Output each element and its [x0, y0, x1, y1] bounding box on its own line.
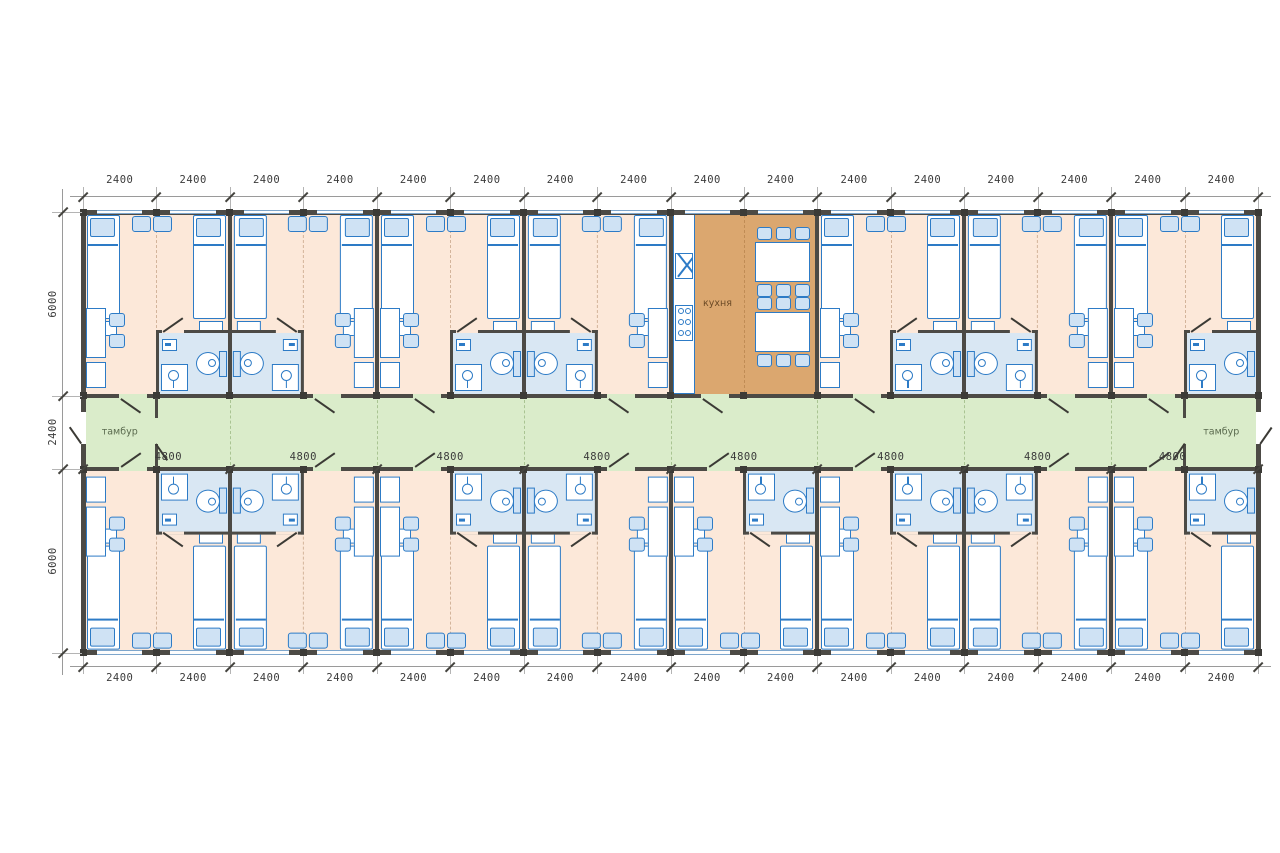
window [611, 650, 656, 654]
cabinet [354, 362, 374, 388]
bed-pillow [384, 628, 409, 647]
shower-stem [285, 477, 287, 485]
bed [87, 546, 120, 650]
dimension-label-bottom: 2400 [767, 672, 794, 684]
room-unit [230, 469, 377, 653]
stool [741, 633, 760, 649]
toilet-bowl-inner [538, 498, 546, 506]
bathroom [890, 469, 964, 535]
unit-interior [230, 212, 377, 396]
shower-stem [579, 380, 581, 388]
window [758, 650, 803, 654]
corner-post [300, 392, 307, 399]
window [758, 210, 803, 214]
window [1052, 210, 1097, 214]
dimension-label-top: 2400 [180, 174, 207, 186]
burner [685, 330, 691, 336]
corner-post [447, 392, 454, 399]
shower-icon [161, 474, 188, 501]
toilet-cistern [806, 488, 814, 514]
sink-icon [577, 514, 592, 526]
window [978, 210, 1023, 214]
bed-pillow [783, 628, 808, 647]
bed-pillow [490, 628, 515, 647]
corner-post [373, 392, 380, 399]
stool [403, 517, 419, 531]
corner-post [1108, 209, 1115, 216]
bathroom [964, 469, 1038, 535]
dimension-label-left: 6000 [47, 547, 59, 574]
room-door [413, 394, 441, 398]
cabinet [86, 477, 106, 503]
cabinet [354, 477, 374, 503]
corner-post [594, 466, 601, 473]
toilet-bowl-inner [942, 359, 950, 367]
toilet-bowl [490, 352, 514, 375]
unit-interior [964, 469, 1111, 653]
room-unit [524, 212, 671, 396]
dimension-label-bottom: 2400 [180, 672, 207, 684]
window [97, 210, 142, 214]
dimension-label-corridor: 4800 [730, 451, 757, 463]
corner-post [594, 392, 601, 399]
shower-stem [467, 477, 469, 485]
sink-icon [162, 339, 177, 351]
corridor-joint-line [230, 400, 231, 465]
stool [629, 313, 645, 327]
dimension-label-top: 2400 [400, 174, 427, 186]
stool [795, 284, 810, 297]
stool [309, 216, 328, 232]
window [611, 210, 656, 214]
bed-blanket-line [1222, 619, 1252, 621]
unit-interior [817, 212, 964, 396]
stool [776, 284, 791, 297]
burner [678, 308, 684, 314]
dimension-label-top: 2400 [106, 174, 133, 186]
window [1199, 210, 1244, 214]
dimension-label-corridor: 4800 [1024, 451, 1051, 463]
toilet-cistern [1247, 488, 1255, 514]
bed-pillow [973, 218, 998, 237]
bathroom [964, 330, 1038, 396]
stool [1022, 633, 1041, 649]
sink-icon [1190, 514, 1205, 526]
sink-icon [577, 339, 592, 351]
bed [1221, 546, 1254, 650]
dimension-label-bottom: 2400 [914, 672, 941, 684]
bed-pillow [930, 218, 955, 237]
cabinet [86, 362, 106, 388]
stool [697, 517, 713, 531]
unit-divider-wall [228, 214, 232, 394]
bed-blanket-line [236, 619, 266, 621]
corner-post [1255, 209, 1262, 216]
corner-post [153, 209, 160, 216]
stool [1137, 517, 1153, 531]
cabinet [380, 362, 400, 388]
unit-interior [230, 469, 377, 653]
toilet-bowl-inner [208, 359, 216, 367]
shower-icon [272, 364, 299, 391]
sink-tap [459, 519, 465, 522]
corridor-joint-line [377, 400, 378, 465]
sink-icon [162, 514, 177, 526]
sink-icon [283, 339, 298, 351]
bed-blanket-line [822, 619, 852, 621]
window [538, 650, 583, 654]
stool [582, 633, 601, 649]
shower-stem [1201, 380, 1203, 388]
dim-extension [303, 187, 304, 209]
bed-blanket-line [488, 244, 518, 246]
dim-extension [1111, 187, 1112, 209]
bed-pillow [824, 218, 849, 237]
stool [109, 334, 125, 348]
window [538, 210, 583, 214]
bed-pillow [90, 628, 115, 647]
bed-blanket-line [928, 619, 958, 621]
desk [820, 507, 840, 557]
cabinet [1088, 362, 1108, 388]
unit-interior [524, 212, 671, 396]
stool [1160, 216, 1179, 232]
room-unit [964, 212, 1111, 396]
toilet-bowl-inner [942, 498, 950, 506]
bed-blanket-line [342, 619, 372, 621]
bed-blanket-line [236, 244, 266, 246]
bed-pillow [384, 218, 409, 237]
dimension-label-bottom: 2400 [1208, 672, 1235, 684]
dimension-label-corridor: 4800 [290, 451, 317, 463]
window [1125, 650, 1170, 654]
corner-post [300, 209, 307, 216]
dimension-label-bottom: 2400 [840, 672, 867, 684]
toilet-cistern [513, 488, 521, 514]
desk [648, 507, 668, 557]
room-door [853, 467, 881, 471]
shower-drain [755, 484, 766, 495]
bed-blanket-line [970, 619, 1000, 621]
stool [1181, 633, 1200, 649]
bed-blanket-line [1076, 619, 1106, 621]
window [317, 210, 362, 214]
bed-pillow [533, 628, 558, 647]
unit-interior [83, 469, 230, 653]
sink-icon [896, 514, 911, 526]
stool [1043, 633, 1062, 649]
toilet-bowl-inner [244, 498, 252, 506]
bed-pillow [1224, 218, 1249, 237]
dimension-label-top: 2400 [840, 174, 867, 186]
bathroom [450, 469, 524, 535]
toilet-cistern [219, 488, 227, 514]
stool [309, 633, 328, 649]
window [97, 650, 142, 654]
dim-extension [52, 469, 82, 470]
stool [887, 216, 906, 232]
window [170, 650, 215, 654]
unit-interior [964, 212, 1111, 396]
sink-tap [899, 519, 905, 522]
dim-extension [450, 187, 451, 209]
shower-drain [1015, 484, 1026, 495]
cabinet [1114, 477, 1134, 503]
dim-extension [1258, 187, 1259, 209]
unit-divider-wall [1109, 214, 1113, 394]
dimension-label-corridor: 4800 [877, 451, 904, 463]
corner-post [740, 392, 747, 399]
stool [335, 538, 351, 552]
shower-stem [173, 380, 175, 388]
sink-tap [289, 343, 295, 346]
kitchen-sink-icon [675, 253, 693, 279]
window [905, 210, 950, 214]
vestibule-partition-door [155, 418, 158, 444]
sink-tap [289, 519, 295, 522]
bed-pillow [1118, 218, 1143, 237]
room-unit [817, 469, 964, 653]
window [685, 650, 730, 654]
stool [795, 227, 810, 240]
toilet-bowl-inner [1236, 359, 1244, 367]
bed [487, 215, 520, 319]
stool [1069, 538, 1085, 552]
shower-stem [467, 380, 469, 388]
dimension-label-bottom: 2400 [253, 672, 280, 684]
toilet-cistern [219, 351, 227, 377]
window [170, 210, 215, 214]
sink-tap [1023, 519, 1029, 522]
stool [757, 354, 772, 367]
entrance-door [81, 412, 86, 444]
toilet-bowl [534, 352, 558, 375]
toilet-bowl [534, 490, 558, 513]
sink-tap [583, 343, 589, 346]
desk [86, 507, 106, 557]
toilet-bowl-inner [502, 498, 510, 506]
stool [795, 297, 810, 310]
shower-icon [566, 474, 593, 501]
toilet-bowl [1224, 490, 1248, 513]
unit-interior: кухня [671, 212, 818, 396]
window [978, 650, 1023, 654]
burner [685, 319, 691, 325]
room-door [313, 394, 341, 398]
toilet-bowl-inner [538, 359, 546, 367]
corner-post [1034, 209, 1041, 216]
bed-blanket-line [530, 244, 560, 246]
stool [426, 633, 445, 649]
stool [1043, 216, 1062, 232]
toilet-bowl [974, 352, 998, 375]
stool [866, 633, 885, 649]
stool [1069, 517, 1085, 531]
stool [720, 633, 739, 649]
bed-pillow [930, 628, 955, 647]
desk [674, 507, 694, 557]
entrance-door-leaf [1259, 427, 1272, 444]
bed-blanket-line [88, 619, 118, 621]
corner-post [226, 209, 233, 216]
unit-divider-wall [1109, 471, 1113, 651]
stool [335, 517, 351, 531]
stool [132, 633, 151, 649]
dimension-label-top: 2400 [987, 174, 1014, 186]
corner-post [667, 392, 674, 399]
toilet-bowl-inner [502, 359, 510, 367]
window [1199, 650, 1244, 654]
window [391, 210, 436, 214]
room-door [607, 394, 635, 398]
bed [528, 546, 561, 650]
stool [843, 334, 859, 348]
corner-post [887, 392, 894, 399]
dim-line-left [62, 189, 63, 675]
shower-icon [161, 364, 188, 391]
sink-tap [752, 519, 758, 522]
bed-pillow [824, 628, 849, 647]
dimension-label-bottom: 2400 [400, 672, 427, 684]
bed [1074, 215, 1107, 319]
bed-pillow [678, 628, 703, 647]
entrance-door [1256, 412, 1261, 444]
toilet-bowl [196, 352, 220, 375]
dim-extension [597, 187, 598, 209]
window [831, 210, 876, 214]
corner-post [520, 392, 527, 399]
bed [1221, 215, 1254, 319]
stool [603, 633, 622, 649]
bed-blanket-line [382, 619, 412, 621]
bed [927, 215, 960, 319]
stool [335, 313, 351, 327]
sink-icon [1190, 339, 1205, 351]
bed-pillow [196, 628, 221, 647]
bed-pillow [973, 628, 998, 647]
sink-tap [1193, 519, 1199, 522]
bathroom [890, 330, 964, 396]
bathroom [743, 469, 817, 535]
corridor-joint-line [671, 400, 672, 465]
dimension-label-top: 2400 [767, 174, 794, 186]
corner-post [520, 209, 527, 216]
dimension-label-corridor: 4800 [155, 451, 182, 463]
shower-icon [272, 474, 299, 501]
toilet-bowl [240, 352, 264, 375]
stool [288, 633, 307, 649]
bed [968, 215, 1001, 319]
corner-post [373, 209, 380, 216]
stool [697, 538, 713, 552]
bed [968, 546, 1001, 650]
kitchen-label: кухня [695, 298, 741, 309]
room-door [413, 467, 441, 471]
bed-blanket-line [88, 244, 118, 246]
shower-stem [907, 477, 909, 485]
bed [193, 546, 226, 650]
shower-drain [575, 484, 586, 495]
window [244, 210, 289, 214]
bed-blanket-line [676, 619, 706, 621]
dimension-label-top: 2400 [547, 174, 574, 186]
unit-divider-wall [669, 214, 673, 394]
room-unit [83, 212, 230, 396]
shower-drain [1196, 484, 1207, 495]
dimension-label-top: 2400 [253, 174, 280, 186]
stool [776, 354, 791, 367]
bed-blanket-line [1116, 244, 1146, 246]
desk [1114, 507, 1134, 557]
bed [634, 546, 667, 650]
dimension-label-top: 2400 [473, 174, 500, 186]
dim-extension [964, 187, 965, 209]
bed-pillow [490, 218, 515, 237]
dimension-label-top: 2400 [1208, 174, 1235, 186]
shower-icon [748, 474, 775, 501]
room-unit [524, 469, 671, 653]
desk [86, 308, 106, 358]
stool [757, 284, 772, 297]
stool [629, 517, 645, 531]
bed-pillow [533, 218, 558, 237]
bed [340, 215, 373, 319]
shower-icon [1006, 474, 1033, 501]
window [464, 210, 509, 214]
stool [447, 633, 466, 649]
stool [153, 216, 172, 232]
dim-extension [817, 187, 818, 209]
sink-tap [1193, 343, 1199, 346]
bathroom [156, 469, 230, 535]
bed-blanket-line [1076, 244, 1106, 246]
dimension-label-bottom: 2400 [620, 672, 647, 684]
unit-divider-wall [375, 214, 379, 394]
cabinet [820, 362, 840, 388]
shower-stem [285, 380, 287, 388]
bed-blanket-line [970, 244, 1000, 246]
desk [1088, 308, 1108, 358]
toilet-bowl-inner [795, 498, 803, 506]
dimension-label-bottom: 2400 [547, 672, 574, 684]
room-door [119, 394, 147, 398]
bed [87, 215, 120, 319]
stool [629, 538, 645, 552]
room-door [1047, 467, 1075, 471]
dim-extension [52, 396, 82, 397]
shower-icon [1189, 364, 1216, 391]
room-unit [817, 212, 964, 396]
bathroom [156, 330, 230, 396]
room-door [607, 467, 635, 471]
stool [866, 216, 885, 232]
window [685, 210, 730, 214]
window [831, 650, 876, 654]
stool [403, 334, 419, 348]
stool [109, 538, 125, 552]
stool [776, 227, 791, 240]
room-unit [671, 469, 818, 653]
shower-drain [462, 484, 473, 495]
dining-table [755, 312, 810, 352]
bed [821, 215, 854, 319]
window [905, 650, 950, 654]
toilet-bowl-inner [978, 498, 986, 506]
bed-pillow [239, 628, 264, 647]
bed [381, 215, 414, 319]
shower-stem [1020, 380, 1022, 388]
bed-blanket-line [636, 619, 666, 621]
